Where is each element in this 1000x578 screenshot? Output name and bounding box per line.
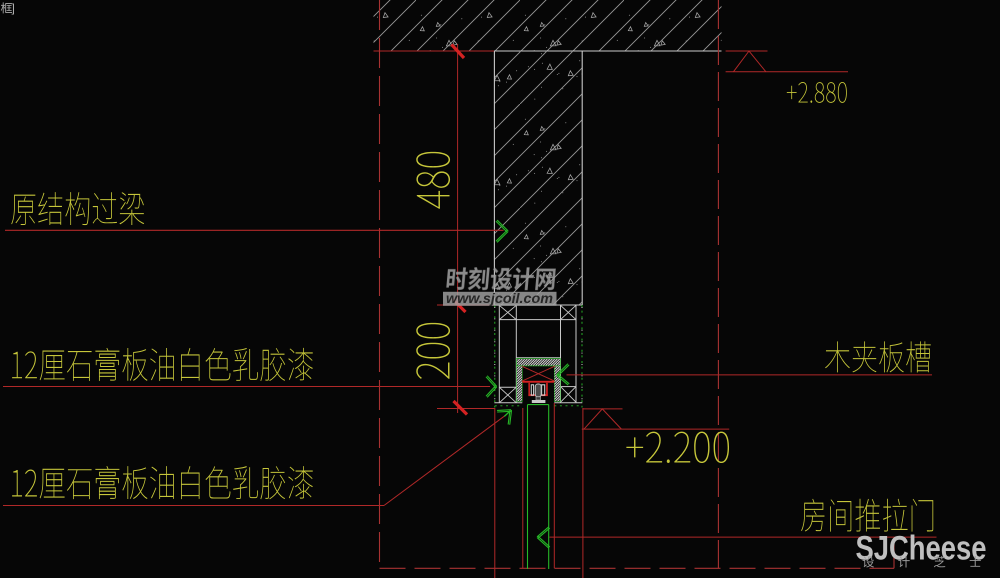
svg-text:www.sjcoil.com: www.sjcoil.com bbox=[446, 291, 553, 306]
svg-text:]: ] bbox=[12, 1, 15, 15]
svg-text:SJCheese: SJCheese bbox=[856, 530, 987, 568]
